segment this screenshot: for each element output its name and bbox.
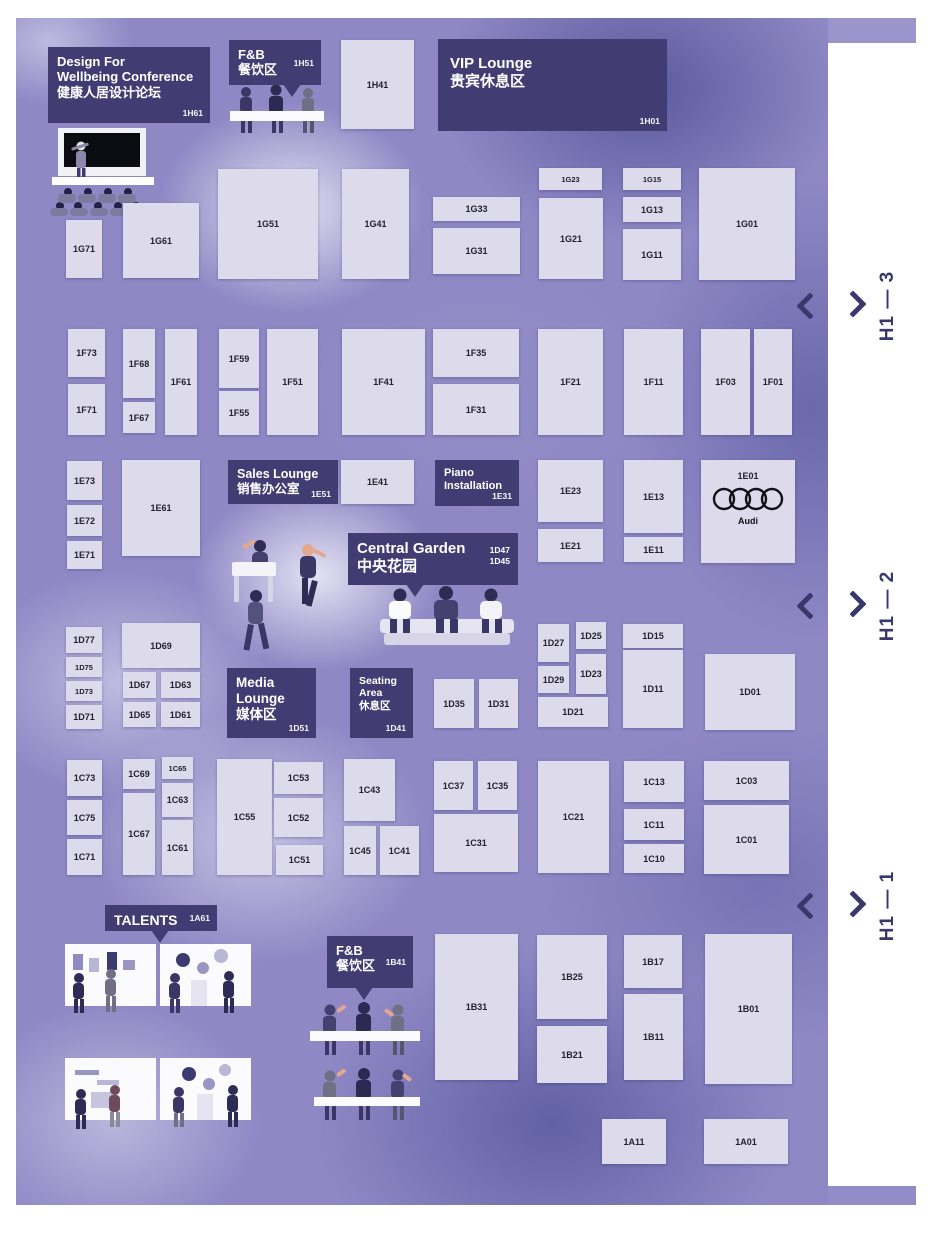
booth-1E72[interactable]: 1E72	[67, 505, 102, 536]
booth-1D65[interactable]: 1D65	[123, 702, 156, 727]
booth-label: 1C67	[128, 829, 150, 839]
booth-label: 1F59	[229, 354, 250, 364]
booth-label: 1G21	[560, 234, 582, 244]
booth-label: 1C53	[288, 773, 310, 783]
booth-1D29[interactable]: 1D29	[538, 666, 569, 693]
central-garden-area[interactable]: Central Garden中央花园1D471D45	[348, 533, 518, 585]
area-title-line: 休息区	[359, 700, 404, 712]
booth-label: 1B11	[643, 1032, 664, 1042]
booth-label: 1F51	[282, 377, 303, 387]
booth-1G61[interactable]: 1G61	[123, 203, 199, 278]
booth-label: 1A11	[623, 1137, 644, 1147]
booth-1C37[interactable]: 1C37	[434, 761, 473, 810]
booth-label: 1D11	[642, 684, 663, 694]
booth-label: 1C51	[289, 855, 311, 865]
booth-1F01[interactable]: 1F01	[754, 329, 792, 435]
booth-label: 1C69	[128, 769, 150, 779]
booth-1C61[interactable]: 1C61	[162, 820, 193, 875]
area-title-line: Sales Lounge	[237, 467, 329, 482]
entrance-chevron-right-icon	[850, 291, 866, 315]
booth-label: 1D31	[488, 699, 510, 709]
booth-1F51[interactable]: 1F51	[267, 329, 318, 435]
booth-label: 1D29	[543, 675, 565, 685]
booth-1H41[interactable]: 1H41	[341, 40, 414, 129]
booth-1F11[interactable]: 1F11	[624, 329, 683, 435]
booth-label: 1B17	[642, 957, 664, 967]
audi-rings-icon: Audi	[712, 486, 784, 528]
booth-1C31[interactable]: 1C31	[434, 814, 518, 872]
booth-1C73[interactable]: 1C73	[67, 760, 102, 796]
booth-label: 1D21	[562, 707, 584, 717]
area-title-line: Media	[236, 675, 307, 691]
floorplan-page: 1H411G711G611G511G411G331G311G231G211G15…	[0, 0, 932, 1236]
area-booth-id: 1D51	[289, 723, 309, 733]
booth-1D35[interactable]: 1D35	[434, 679, 474, 728]
booth-1G01[interactable]: 1G01	[699, 168, 795, 280]
fnb-north-illustration	[228, 84, 326, 134]
booth-1C01[interactable]: 1C01	[704, 805, 789, 874]
booth-1C52[interactable]: 1C52	[274, 798, 323, 837]
booth-label: 1G15	[643, 175, 661, 184]
booth-1C65[interactable]: 1C65	[162, 757, 193, 779]
booth-label: 1F73	[76, 348, 97, 358]
booth-1B21[interactable]: 1B21	[537, 1026, 607, 1083]
booth-1C75[interactable]: 1C75	[67, 800, 102, 835]
booth-label: 1D73	[75, 687, 93, 696]
svg-text:Audi: Audi	[738, 516, 758, 526]
media-lounge-area[interactable]: MediaLounge媒体区1D51	[227, 668, 316, 738]
area-title-line: 媒体区	[236, 707, 307, 723]
booth-label: 1C73	[74, 773, 96, 783]
booth-1D27[interactable]: 1D27	[538, 624, 569, 662]
booth-label: 1F41	[373, 377, 394, 387]
booth-label: 1E61	[150, 503, 171, 513]
booth-1E01[interactable]: 1E01Audi	[701, 460, 795, 563]
area-title-line: Lounge	[236, 691, 307, 707]
area-title-line: Seating	[359, 675, 404, 687]
booth-label: 1E21	[560, 541, 581, 551]
booth-1F68[interactable]: 1F68	[123, 329, 155, 398]
booth-1F61[interactable]: 1F61	[165, 329, 197, 435]
booth-label: 1F11	[643, 377, 663, 387]
booth-1E61[interactable]: 1E61	[122, 460, 200, 556]
booth-1G71[interactable]: 1G71	[66, 220, 102, 278]
booth-label: 1G33	[465, 204, 487, 214]
booth-label: 1D15	[642, 631, 664, 641]
area-title-line: Area	[359, 687, 404, 699]
booth-label: 1C55	[234, 812, 256, 822]
booth-1D21[interactable]: 1D21	[538, 697, 608, 727]
booth-1D63[interactable]: 1D63	[161, 672, 200, 698]
booth-1D23[interactable]: 1D23	[576, 654, 606, 694]
booth-label: 1D23	[580, 669, 602, 679]
sales-lounge-area[interactable]: Sales Lounge销售办公室1E51	[228, 460, 338, 504]
talents-area[interactable]: TALENTS1A61	[105, 905, 217, 931]
vip-lounge-area[interactable]: VIP Lounge贵宾休息区1H01	[438, 39, 667, 131]
booth-label: 1F31	[466, 405, 487, 415]
booth-label: 1G71	[73, 244, 95, 254]
booth-label: 1G41	[364, 219, 386, 229]
area-title-line: 中央花园	[357, 558, 509, 576]
booth-label: 1A01	[735, 1137, 757, 1147]
booth-1F67[interactable]: 1F67	[123, 402, 155, 433]
booth-label: 1F55	[229, 408, 250, 418]
booth-1C10[interactable]: 1C10	[624, 844, 684, 873]
banner-pointer	[151, 930, 169, 943]
booth-label: 1G51	[257, 219, 279, 229]
booth-1D73[interactable]: 1D73	[66, 681, 102, 701]
booth-1A01[interactable]: 1A01	[704, 1119, 788, 1164]
booth-label: 1D77	[73, 635, 95, 645]
booth-1C41[interactable]: 1C41	[380, 826, 419, 875]
booth-1B01[interactable]: 1B01	[705, 934, 792, 1084]
booth-label: 1E71	[74, 550, 95, 560]
area-booth-ids: 1D471D45	[490, 545, 510, 567]
booth-label: 1D27	[543, 638, 565, 648]
booth-label: 1C21	[563, 812, 585, 822]
hall-top-edge	[828, 18, 916, 43]
entrance-label-h1-3: H1 — 3	[877, 271, 899, 341]
central-garden-bench-illustration	[372, 585, 522, 651]
booth-label: 1D35	[443, 699, 465, 709]
area-booth-id: 1A61	[190, 913, 210, 923]
booth-1E71[interactable]: 1E71	[67, 541, 102, 569]
booth-label: 1C45	[349, 846, 371, 856]
booth-label: 1B25	[561, 972, 583, 982]
booth-1D69[interactable]: 1D69	[122, 623, 200, 668]
area-booth-id: 1E51	[311, 489, 331, 499]
booth-1G21[interactable]: 1G21	[539, 198, 603, 279]
fnb-north-area[interactable]: F&B餐饮区1H51	[229, 40, 321, 85]
booth-1C45[interactable]: 1C45	[344, 826, 376, 875]
booth-label: 1F01	[763, 377, 784, 387]
booth-label: 1G01	[736, 219, 758, 229]
conference-area[interactable]: Design ForWellbeing Conference健康人居设计论坛1H…	[48, 47, 210, 123]
booth-label: 1F21	[560, 377, 581, 387]
booth-1F21[interactable]: 1F21	[538, 329, 603, 435]
booth-1D75[interactable]: 1D75	[66, 657, 102, 677]
booth-1F73[interactable]: 1F73	[68, 329, 105, 377]
booth-label: 1F68	[129, 359, 150, 369]
booth-1F03[interactable]: 1F03	[701, 329, 750, 435]
booth-label: 1C13	[643, 777, 665, 787]
area-title-line: 贵宾休息区	[450, 73, 655, 91]
booth-label: 1C71	[74, 852, 96, 862]
booth-1G41[interactable]: 1G41	[342, 169, 409, 279]
booth-1C21[interactable]: 1C21	[538, 761, 609, 873]
area-booth-id: 1E31	[492, 491, 512, 501]
booth-label: 1H41	[367, 80, 389, 90]
booth-1G11[interactable]: 1G11	[623, 229, 681, 280]
booth-label: 1D69	[150, 641, 172, 651]
area-title-line: Central Garden	[357, 540, 509, 558]
booth-1C53[interactable]: 1C53	[274, 762, 323, 794]
entrance-chevron-right-icon	[850, 591, 866, 615]
booth-1C43[interactable]: 1C43	[344, 759, 395, 821]
booth-label: 1F67	[129, 413, 150, 423]
booth-1B25[interactable]: 1B25	[537, 935, 607, 1019]
booth-label: 1C52	[288, 813, 310, 823]
booth-label: 1G61	[150, 236, 172, 246]
fnb-south-illustration-1	[308, 1000, 422, 1064]
banner-pointer	[406, 584, 424, 597]
booth-1E11[interactable]: 1E11	[624, 537, 683, 562]
booth-1E13[interactable]: 1E13	[624, 460, 683, 533]
booth-label: 1E72	[74, 516, 95, 526]
booth-1D77[interactable]: 1D77	[66, 627, 102, 653]
booth-1C35[interactable]: 1C35	[478, 761, 517, 810]
booth-label: 1C63	[167, 795, 189, 805]
booth-label: 1C10	[643, 854, 665, 864]
booth-1D61[interactable]: 1D61	[161, 702, 200, 727]
booth-1G13[interactable]: 1G13	[623, 197, 681, 222]
booth-label: 1G13	[641, 205, 663, 215]
booth-label: 1F71	[76, 405, 97, 415]
booth-1G23[interactable]: 1G23	[539, 168, 602, 190]
booth-label: 1E01	[737, 471, 758, 481]
area-title-line: Design For	[57, 54, 201, 69]
booth-label: 1D61	[170, 710, 192, 720]
talents-gallery-illustration-1	[63, 938, 255, 1038]
booth-1D01[interactable]: 1D01	[705, 654, 795, 730]
entrance-label-h1-1: H1 — 1	[877, 871, 899, 941]
booth-1F31[interactable]: 1F31	[433, 384, 519, 435]
booth-1C03[interactable]: 1C03	[704, 761, 789, 800]
booth-1F35[interactable]: 1F35	[433, 329, 519, 377]
booth-1C51[interactable]: 1C51	[276, 845, 323, 875]
area-booth-id: 1H61	[183, 108, 203, 118]
booth-1D31[interactable]: 1D31	[479, 679, 518, 728]
booth-1B31[interactable]: 1B31	[435, 934, 518, 1080]
booth-label: 1D01	[739, 687, 761, 697]
entrance-chevron-left-icon	[797, 893, 813, 917]
booth-label: 1C37	[443, 781, 465, 791]
booth-1F71[interactable]: 1F71	[68, 384, 105, 435]
fnb-south-area[interactable]: F&B餐饮区1B41	[327, 936, 413, 988]
booth-label: 1C01	[736, 835, 758, 845]
booth-label: 1E11	[643, 545, 664, 555]
booth-label: 1C11	[643, 820, 664, 830]
booth-label: 1C35	[487, 781, 509, 791]
booth-1F41[interactable]: 1F41	[342, 329, 425, 435]
booth-1B17[interactable]: 1B17	[624, 935, 682, 988]
booth-label: 1G11	[641, 250, 663, 260]
booth-label: 1D65	[129, 710, 151, 720]
booth-1G31[interactable]: 1G31	[433, 228, 520, 274]
area-title-line: VIP Lounge	[450, 55, 655, 73]
booth-1E41[interactable]: 1E41	[341, 460, 414, 504]
banner-pointer	[355, 987, 373, 1000]
fnb-south-illustration-2	[312, 1066, 422, 1128]
sales-lounge-people-illustration	[222, 534, 338, 652]
booth-label: 1G31	[465, 246, 487, 256]
booth-1D11[interactable]: 1D11	[623, 650, 683, 728]
booth-label: 1C31	[465, 838, 487, 848]
booth-1D25[interactable]: 1D25	[576, 622, 606, 649]
booth-1G51[interactable]: 1G51	[218, 169, 318, 279]
area-booth-id: 1H51	[294, 58, 314, 68]
booth-label: 1C65	[169, 764, 187, 773]
booth-label: 1E41	[367, 477, 388, 487]
booth-label: 1D25	[580, 631, 602, 641]
area-title-line: 健康人居设计论坛	[57, 85, 201, 100]
booth-1C55[interactable]: 1C55	[217, 759, 272, 875]
area-booth-id: 1B41	[386, 957, 406, 967]
booth-1B11[interactable]: 1B11	[624, 994, 683, 1080]
booth-label: 1G23	[561, 175, 579, 184]
booth-1F59[interactable]: 1F59	[219, 329, 259, 388]
booth-label: 1B31	[466, 1002, 488, 1012]
booth-1F55[interactable]: 1F55	[219, 391, 259, 435]
booth-label: 1F35	[466, 348, 487, 358]
booth-1G33[interactable]: 1G33	[433, 197, 520, 221]
entrance-label-h1-2: H1 — 2	[877, 571, 899, 641]
booth-label: 1F03	[715, 377, 736, 387]
entrance-chevron-left-icon	[797, 593, 813, 617]
booth-label: 1C43	[359, 785, 381, 795]
booth-1C71[interactable]: 1C71	[67, 839, 102, 875]
booth-1C11[interactable]: 1C11	[624, 809, 684, 840]
booth-label: 1C61	[167, 843, 189, 853]
booth-label: 1D63	[170, 680, 192, 690]
booth-label: 1C41	[389, 846, 411, 856]
area-title-line: Wellbeing Conference	[57, 69, 201, 84]
booth-label: 1E13	[643, 492, 664, 502]
area-title-line: Piano	[444, 467, 510, 480]
booth-label: 1B01	[738, 1004, 760, 1014]
booth-label: 1F61	[171, 377, 192, 387]
banner-pointer	[283, 84, 301, 97]
area-booth-id: 1H01	[640, 116, 660, 126]
booth-1E73[interactable]: 1E73	[67, 461, 102, 500]
booth-label: 1D71	[73, 712, 95, 722]
area-booth-id: 1D41	[386, 723, 406, 733]
entrance-chevron-right-icon	[850, 891, 866, 915]
hall-bottom-edge	[828, 1186, 916, 1205]
booth-label: 1D75	[75, 663, 93, 672]
booth-1C67[interactable]: 1C67	[123, 793, 155, 875]
piano-installation-area[interactable]: PianoInstallation1E31	[435, 460, 519, 506]
booth-label: 1E23	[560, 486, 581, 496]
booth-1D67[interactable]: 1D67	[123, 672, 156, 698]
booth-1C69[interactable]: 1C69	[123, 759, 155, 789]
seating-area[interactable]: SeatingArea休息区1D41	[350, 668, 413, 738]
talents-gallery-illustration-2	[63, 1052, 255, 1150]
booth-1D71[interactable]: 1D71	[66, 705, 102, 729]
booth-label: 1C03	[736, 776, 758, 786]
booth-1E21[interactable]: 1E21	[538, 529, 603, 562]
booth-1E23[interactable]: 1E23	[538, 460, 603, 522]
booth-1D15[interactable]: 1D15	[623, 624, 683, 648]
booth-label: 1E73	[74, 476, 95, 486]
booth-1C63[interactable]: 1C63	[162, 783, 193, 817]
booth-label: 1D67	[129, 680, 151, 690]
entrance-chevron-left-icon	[797, 293, 813, 317]
booth-1C13[interactable]: 1C13	[624, 761, 684, 802]
booth-label: 1C75	[74, 813, 96, 823]
booth-1G15[interactable]: 1G15	[623, 168, 681, 190]
booth-label: 1B21	[561, 1050, 583, 1060]
booth-1A11[interactable]: 1A11	[602, 1119, 666, 1164]
